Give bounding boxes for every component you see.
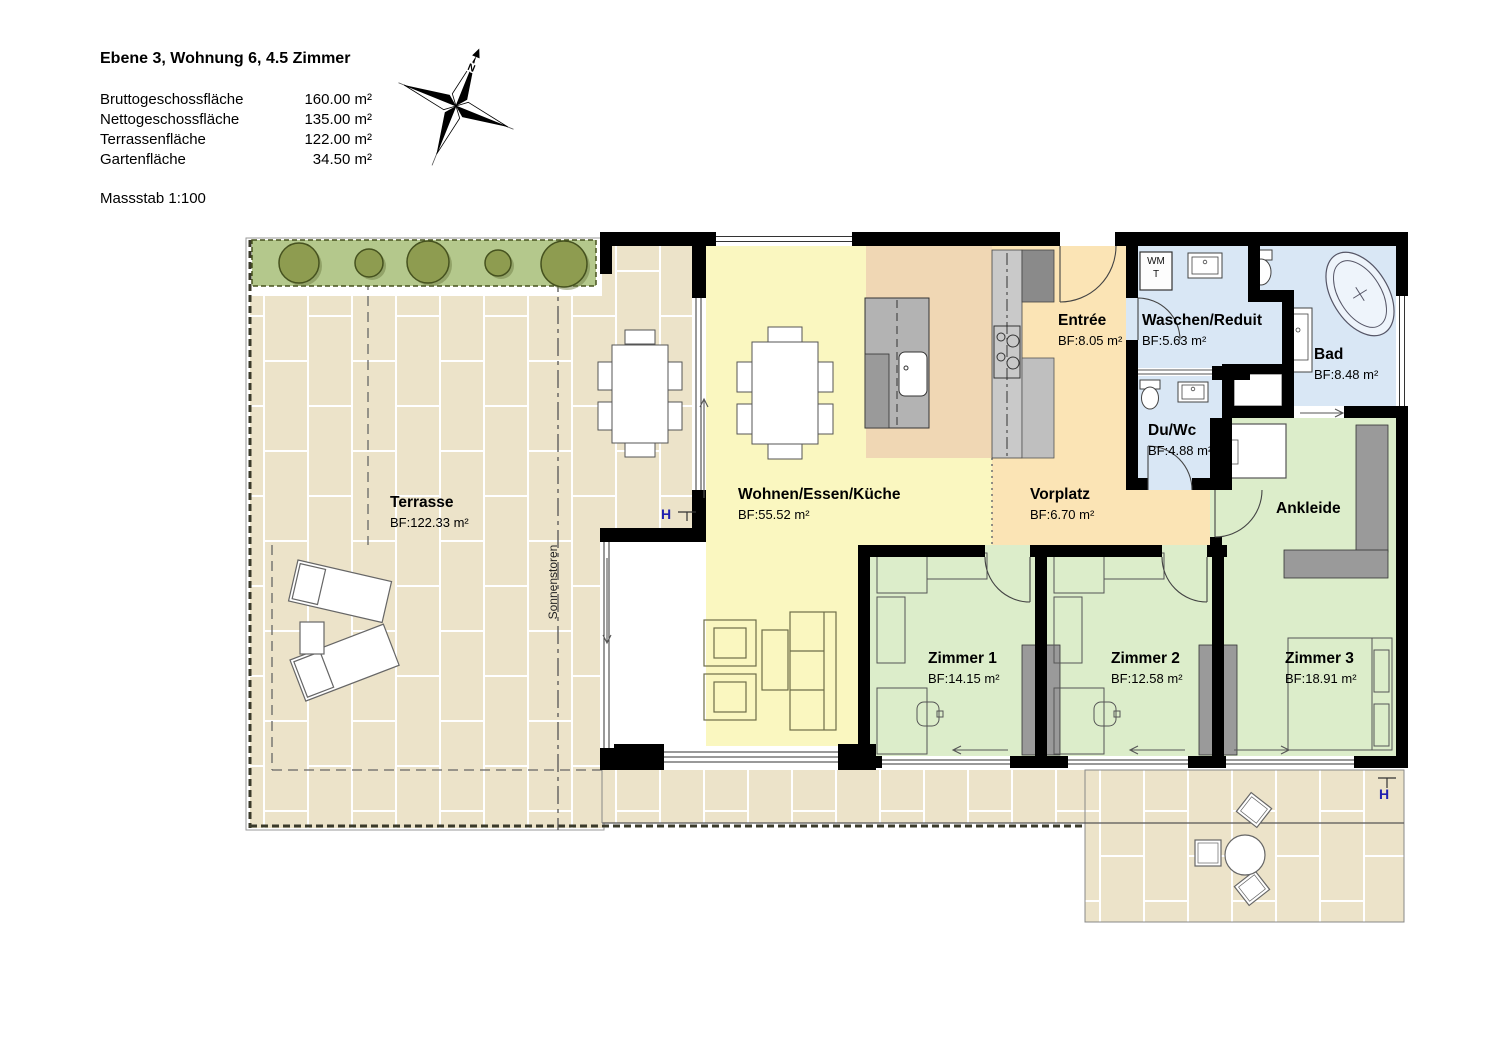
room-label-bad: Bad BF:8.48 m² <box>1314 346 1378 382</box>
room-label-entree: Entrée BF:8.05 m² <box>1058 312 1122 348</box>
shower-duwc <box>1230 424 1286 478</box>
washbasin-icon-duwc <box>1178 382 1208 402</box>
washer-tumbler-label: WM T <box>1138 255 1174 281</box>
page-title: Ebene 3, Wohnung 6, 4.5 Zimmer <box>100 50 350 68</box>
hydrant-marker: H <box>661 506 671 522</box>
window-top-living <box>716 232 852 246</box>
area-row: Nettogeschossfläche 135.00 m² <box>100 110 372 130</box>
window-slider-living <box>664 746 838 768</box>
kitchen-island <box>865 298 929 428</box>
room-label-waschen: Waschen/Reduit BF:5.63 m² <box>1142 312 1262 348</box>
compass-icon: N <box>375 25 537 188</box>
entry-door-opening <box>1060 232 1115 246</box>
sliding-door-waschen <box>1138 368 1212 376</box>
area-table: Bruttogeschossfläche 160.00 m² Nettogesc… <box>100 90 372 170</box>
area-row: Terrassenfläche 122.00 m² <box>100 130 372 150</box>
scale-label: Massstab 1:100 <box>100 190 206 207</box>
sonnenstoren-label: Sonnenstoren <box>546 545 560 620</box>
room-label-wohnen: Wohnen/Essen/Küche BF:55.52 m² <box>738 486 901 522</box>
window-zimmer1 <box>882 756 1010 768</box>
area-row: Bruttogeschossfläche 160.00 m² <box>100 90 372 110</box>
room-label-duwc: Du/Wc BF:4.88 m² <box>1148 422 1212 458</box>
area-row: Gartenfläche 34.50 m² <box>100 150 372 170</box>
window-bad-east <box>1396 296 1408 406</box>
side-table <box>300 622 324 654</box>
room-label-zimmer1: Zimmer 1 BF:14.15 m² <box>928 650 1000 686</box>
room-label-zimmer2: Zimmer 2 BF:12.58 m² <box>1111 650 1183 686</box>
planter <box>252 240 596 290</box>
sink-icon <box>899 352 927 396</box>
toilet-icon-duwc <box>1140 380 1160 409</box>
window-zimmer2 <box>1068 756 1188 768</box>
room-label-ankleide: Ankleide <box>1276 500 1341 518</box>
room-label-terrasse: Terrasse BF:122.33 m² <box>390 494 469 530</box>
window-zimmer3 <box>1226 756 1354 768</box>
floorplan-page: N Ebene 3, Wohnung 6, 4.5 Zimmer Bruttog… <box>0 0 1500 1060</box>
room-label-zimmer3: Zimmer 3 BF:18.91 m² <box>1285 650 1357 686</box>
hydrant-marker: H <box>1379 786 1389 802</box>
room-label-vorplatz: Vorplatz BF:6.70 m² <box>1030 486 1094 522</box>
laundry-sink-icon <box>1188 253 1222 278</box>
